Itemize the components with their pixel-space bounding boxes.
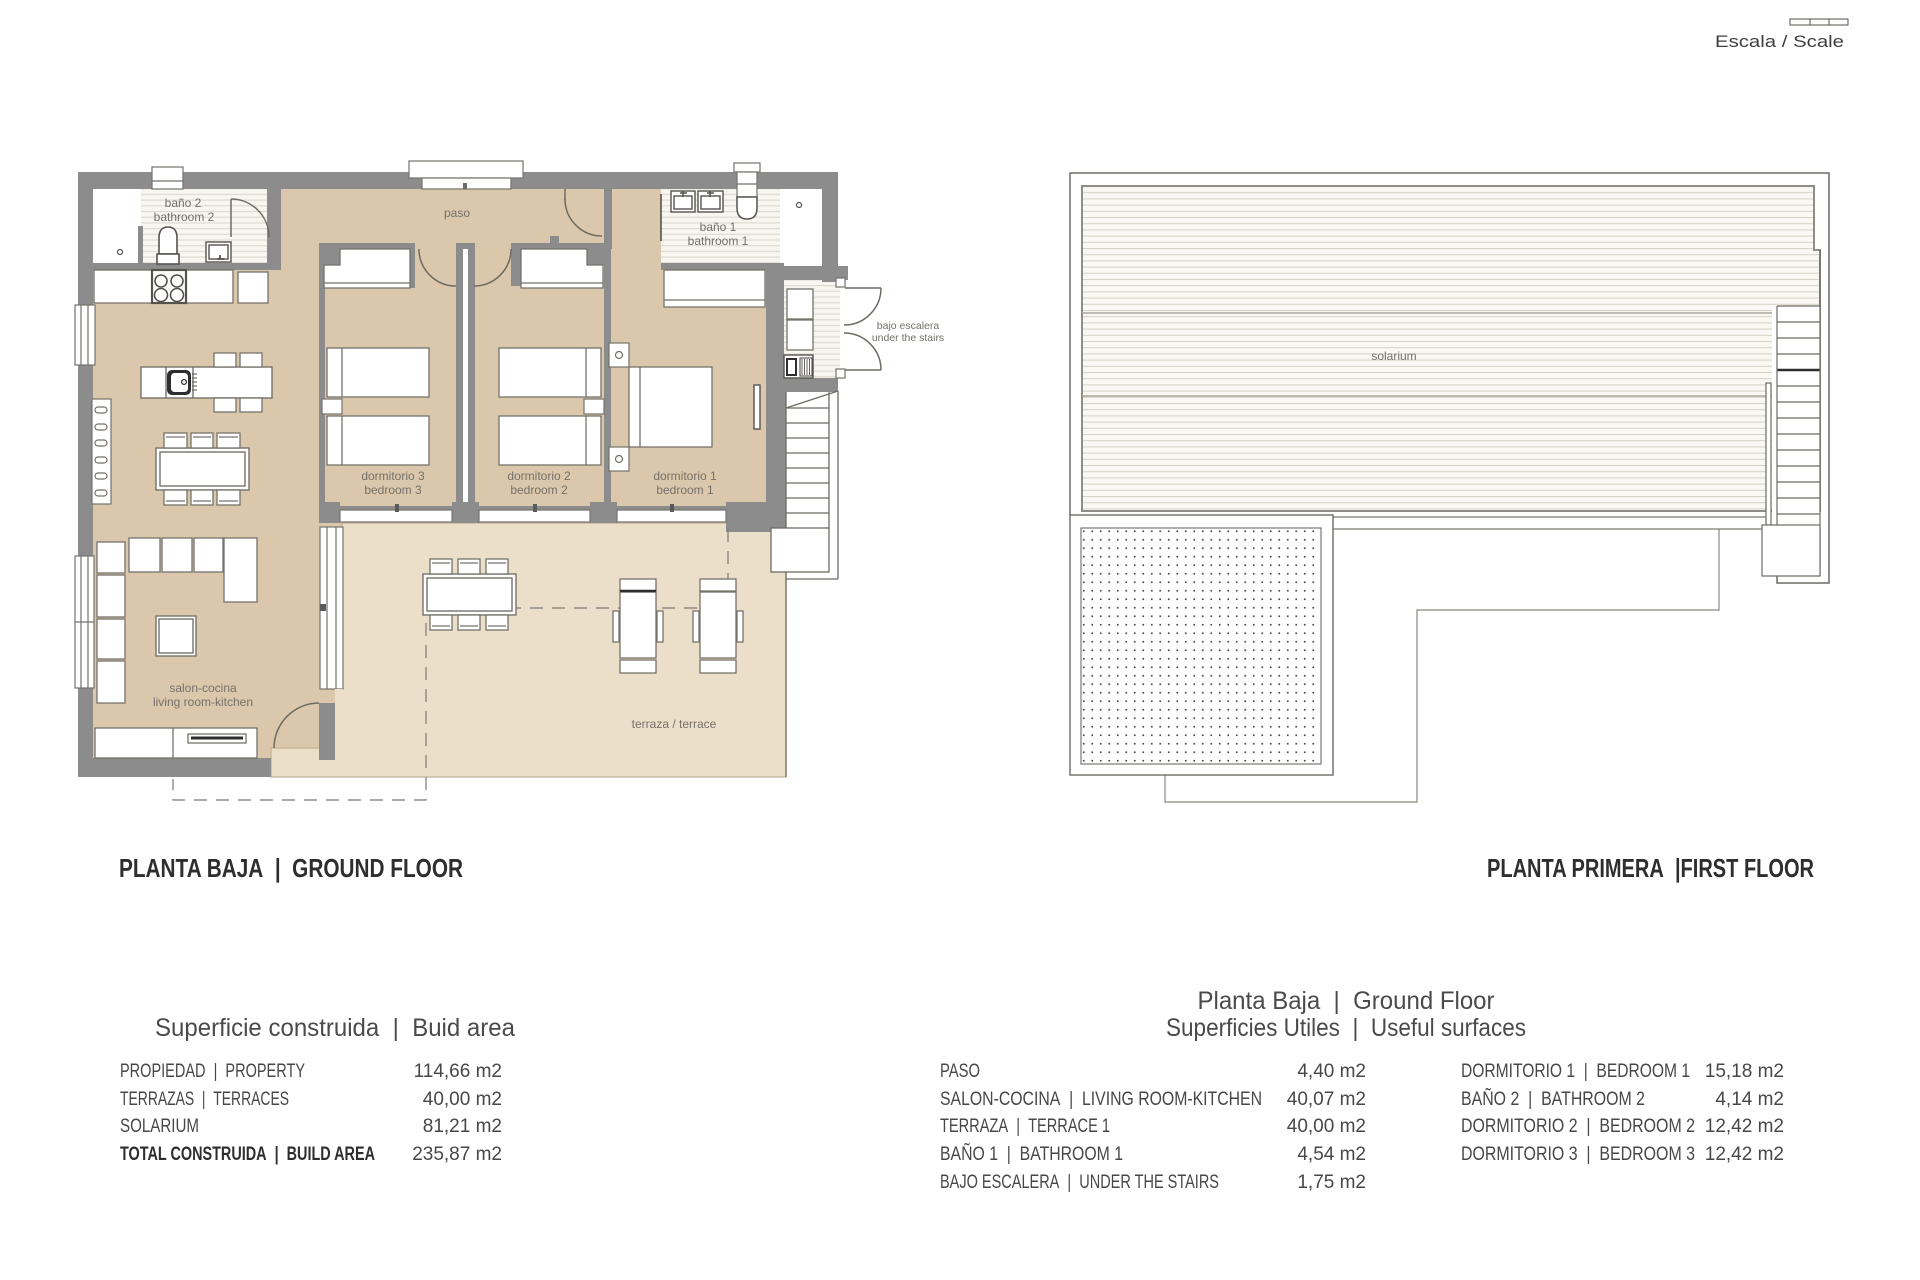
svg-text:BAJO ESCALERA | UNDER THE ST: BAJO ESCALERA | UNDER THE STAIRS: [940, 1172, 1219, 1193]
svg-text:TOTAL CONSTRUIDA | BUILD ARE: TOTAL CONSTRUIDA | BUILD AREA: [120, 1144, 375, 1165]
svg-text:Superficies Utiles | Useful: Superficies Utiles | Useful surfaces: [1166, 1014, 1526, 1042]
svg-text:PROPIEDAD | PROPERTY: PROPIEDAD | PROPERTY: [120, 1061, 305, 1082]
svg-text:baño 1: baño 1: [700, 220, 737, 234]
svg-text:salon-cocina: salon-cocina: [169, 681, 237, 695]
svg-text:Planta Baja | Ground Floor: Planta Baja | Ground Floor: [1198, 987, 1495, 1015]
svg-text:bajo escalera: bajo escalera: [877, 320, 940, 332]
svg-text:81,21 m2: 81,21 m2: [423, 1116, 502, 1137]
svg-text:235,87 m2: 235,87 m2: [412, 1144, 502, 1165]
svg-text:BAÑO 2 | BATHROOM 2: BAÑO 2 | BATHROOM 2: [1461, 1088, 1645, 1110]
svg-text:12,42 m2: 12,42 m2: [1705, 1116, 1784, 1137]
svg-text:PLANTA PRIMERA |FIRST FLOOR: PLANTA PRIMERA |FIRST FLOOR: [1487, 853, 1814, 883]
svg-text:12,42 m2: 12,42 m2: [1705, 1144, 1784, 1165]
svg-text:DORMITORIO 1 | BEDROOM 1: DORMITORIO 1 | BEDROOM 1: [1461, 1061, 1690, 1082]
svg-text:4,54 m2: 4,54 m2: [1297, 1144, 1366, 1165]
svg-text:40,07 m2: 40,07 m2: [1287, 1089, 1366, 1110]
svg-text:PLANTA BAJA | GROUND FLOOR: PLANTA BAJA | GROUND FLOOR: [119, 853, 463, 883]
svg-text:4,14 m2: 4,14 m2: [1715, 1089, 1784, 1110]
svg-text:BAÑO 1 | BATHROOM 1: BAÑO 1 | BATHROOM 1: [940, 1143, 1123, 1165]
svg-text:40,00 m2: 40,00 m2: [1287, 1116, 1366, 1137]
svg-text:solarium: solarium: [1371, 349, 1416, 363]
svg-text:SOLARIUM: SOLARIUM: [120, 1116, 199, 1137]
svg-text:living room-kitchen: living room-kitchen: [153, 695, 253, 709]
svg-text:Escala / Scale: Escala / Scale: [1715, 32, 1844, 51]
svg-text:under the stairs: under the stairs: [872, 332, 944, 344]
svg-text:15,18 m2: 15,18 m2: [1705, 1061, 1784, 1082]
svg-text:PASO: PASO: [940, 1061, 980, 1082]
svg-text:TERRAZAS | TERRACES: TERRAZAS | TERRACES: [120, 1089, 289, 1110]
svg-text:114,66 m2: 114,66 m2: [414, 1061, 502, 1082]
svg-text:terraza / terrace: terraza / terrace: [632, 717, 717, 731]
svg-text:dormitorio 1: dormitorio 1: [653, 469, 717, 483]
svg-text:1,75 m2: 1,75 m2: [1297, 1172, 1366, 1193]
svg-text:bedroom 3: bedroom 3: [364, 483, 422, 497]
svg-text:SALON-COCINA | LIVING ROOM-K: SALON-COCINA | LIVING ROOM-KITCHEN: [940, 1089, 1262, 1110]
svg-text:Superficie construida | Buid: Superficie construida | Buid area: [155, 1014, 515, 1042]
svg-text:bedroom 2: bedroom 2: [510, 483, 568, 497]
svg-text:dormitorio 3: dormitorio 3: [361, 469, 425, 483]
svg-text:TERRAZA | TERRACE 1: TERRAZA | TERRACE 1: [940, 1116, 1110, 1137]
svg-text:bathroom 1: bathroom 1: [688, 234, 749, 248]
svg-text:DORMITORIO 3 | BEDROOM 3: DORMITORIO 3 | BEDROOM 3: [1461, 1144, 1695, 1165]
svg-text:dormitorio 2: dormitorio 2: [507, 469, 571, 483]
svg-text:DORMITORIO 2 | BEDROOM 2: DORMITORIO 2 | BEDROOM 2: [1461, 1116, 1695, 1137]
svg-text:4,40 m2: 4,40 m2: [1297, 1061, 1366, 1082]
svg-text:40,00 m2: 40,00 m2: [423, 1089, 502, 1110]
svg-text:paso: paso: [444, 206, 470, 220]
svg-text:baño 2: baño 2: [165, 196, 202, 210]
svg-text:bedroom 1: bedroom 1: [656, 483, 714, 497]
svg-text:bathroom 2: bathroom 2: [154, 210, 215, 224]
